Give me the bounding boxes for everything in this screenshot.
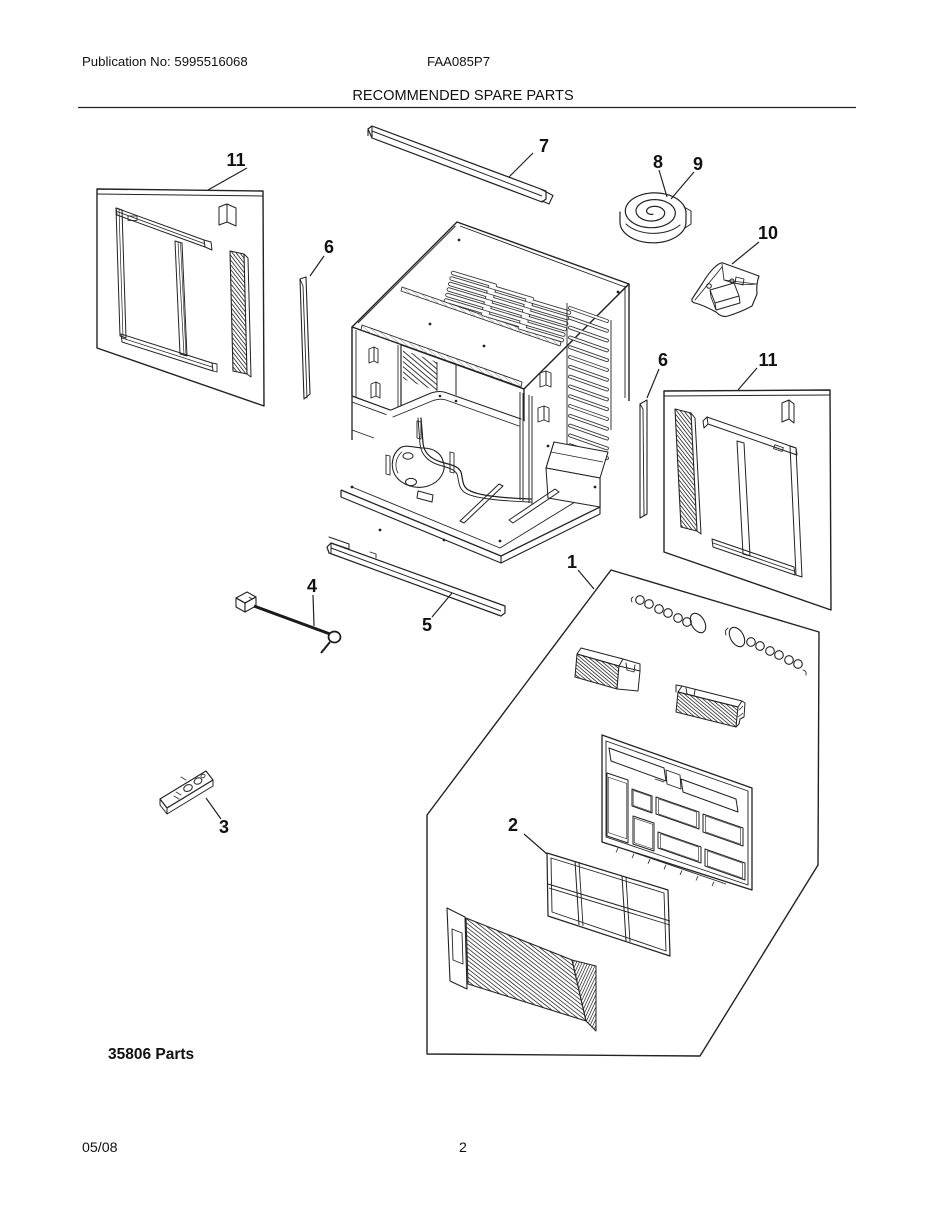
svg-text:9: 9 [693, 154, 703, 174]
svg-text:Publication No: 5995516068: Publication No: 5995516068 [82, 54, 248, 69]
svg-text:1: 1 [567, 552, 577, 572]
svg-text:4: 4 [307, 576, 317, 596]
svg-text:6: 6 [658, 350, 668, 370]
svg-text:5: 5 [422, 615, 432, 635]
svg-text:05/08: 05/08 [82, 1140, 118, 1156]
svg-text:3: 3 [219, 817, 229, 837]
svg-text:2: 2 [508, 815, 518, 835]
svg-text:7: 7 [539, 136, 549, 156]
svg-text:FAA085P7: FAA085P7 [427, 54, 490, 69]
svg-text:RECOMMENDED SPARE PARTS: RECOMMENDED SPARE PARTS [352, 88, 574, 104]
svg-text:6: 6 [324, 237, 334, 257]
svg-text:35806 Parts: 35806 Parts [108, 1046, 194, 1063]
svg-text:8: 8 [653, 152, 663, 172]
svg-text:11: 11 [226, 150, 245, 170]
svg-text:2: 2 [459, 1140, 467, 1156]
svg-text:10: 10 [758, 223, 778, 243]
svg-text:11: 11 [758, 350, 777, 370]
